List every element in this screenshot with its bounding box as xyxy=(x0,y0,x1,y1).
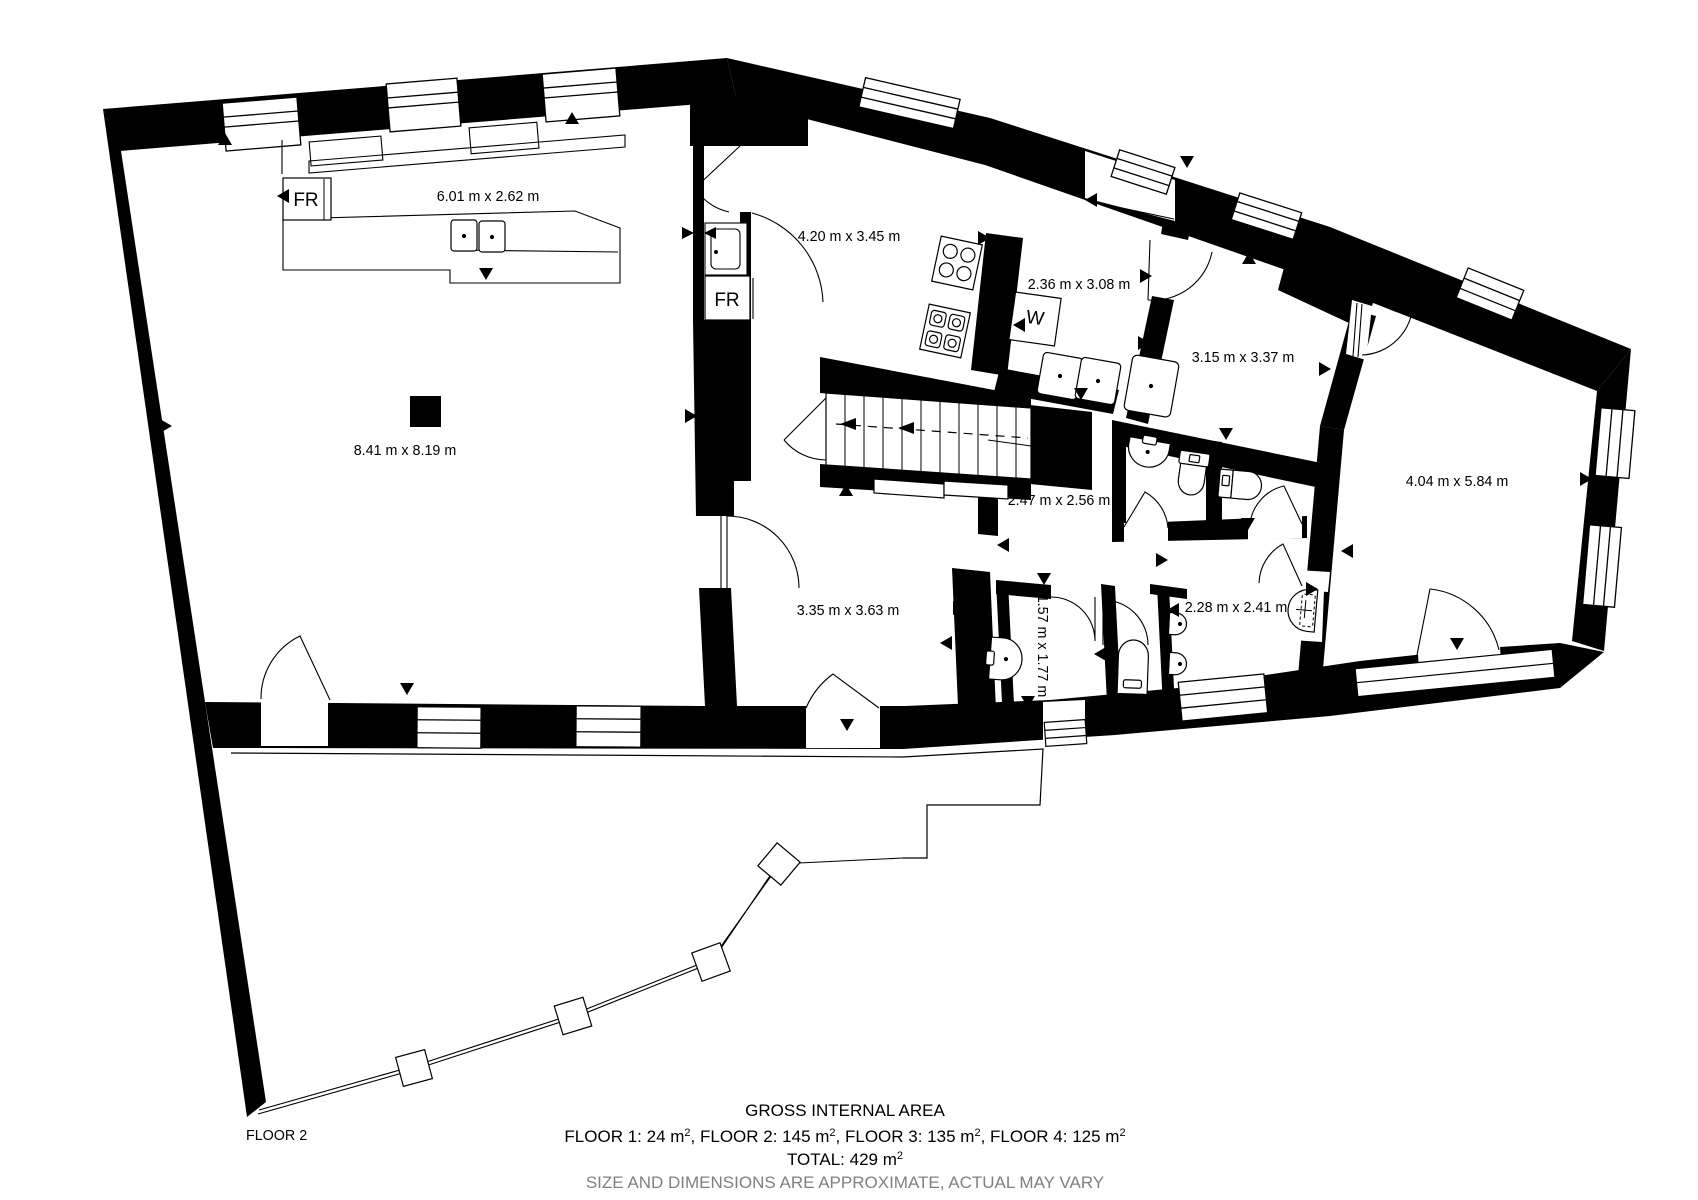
svg-text:TOTAL: 429 m2: TOTAL: 429 m2 xyxy=(787,1150,903,1169)
svg-text:8.41 m x 8.19 m: 8.41 m x 8.19 m xyxy=(354,443,457,459)
svg-text:GROSS INTERNAL AREA: GROSS INTERNAL AREA xyxy=(745,1101,945,1120)
svg-text:6.01 m x 2.62 m: 6.01 m x 2.62 m xyxy=(437,189,540,205)
svg-text:FR: FR xyxy=(293,190,318,211)
svg-text:2.47 m x 2.56 m: 2.47 m x 2.56 m xyxy=(1008,493,1111,509)
svg-text:3.15 m x 3.37 m: 3.15 m x 3.37 m xyxy=(1192,350,1295,366)
svg-text:FLOOR 1: 24 m2, FLOOR 2: 145 m: FLOOR 1: 24 m2, FLOOR 2: 145 m2, FLOOR 3… xyxy=(564,1127,1125,1146)
svg-text:4.20 m x 3.45 m: 4.20 m x 3.45 m xyxy=(798,229,901,245)
svg-text:SIZE AND DIMENSIONS ARE APPROX: SIZE AND DIMENSIONS ARE APPROXIMATE, ACT… xyxy=(586,1173,1104,1192)
svg-text:3.35 m x 3.63 m: 3.35 m x 3.63 m xyxy=(797,603,900,619)
svg-text:2.28 m x 2.41 m: 2.28 m x 2.41 m xyxy=(1185,600,1288,616)
svg-text:2.36 m x 3.08 m: 2.36 m x 3.08 m xyxy=(1028,277,1131,293)
svg-text:FLOOR 2: FLOOR 2 xyxy=(246,1128,307,1144)
svg-text:4.04 m x 5.84 m: 4.04 m x 5.84 m xyxy=(1406,474,1509,490)
svg-text:W: W xyxy=(1025,307,1046,330)
svg-text:FR: FR xyxy=(714,290,739,311)
svg-text:1.57 m x 1.77 m: 1.57 m x 1.77 m xyxy=(1034,595,1050,698)
